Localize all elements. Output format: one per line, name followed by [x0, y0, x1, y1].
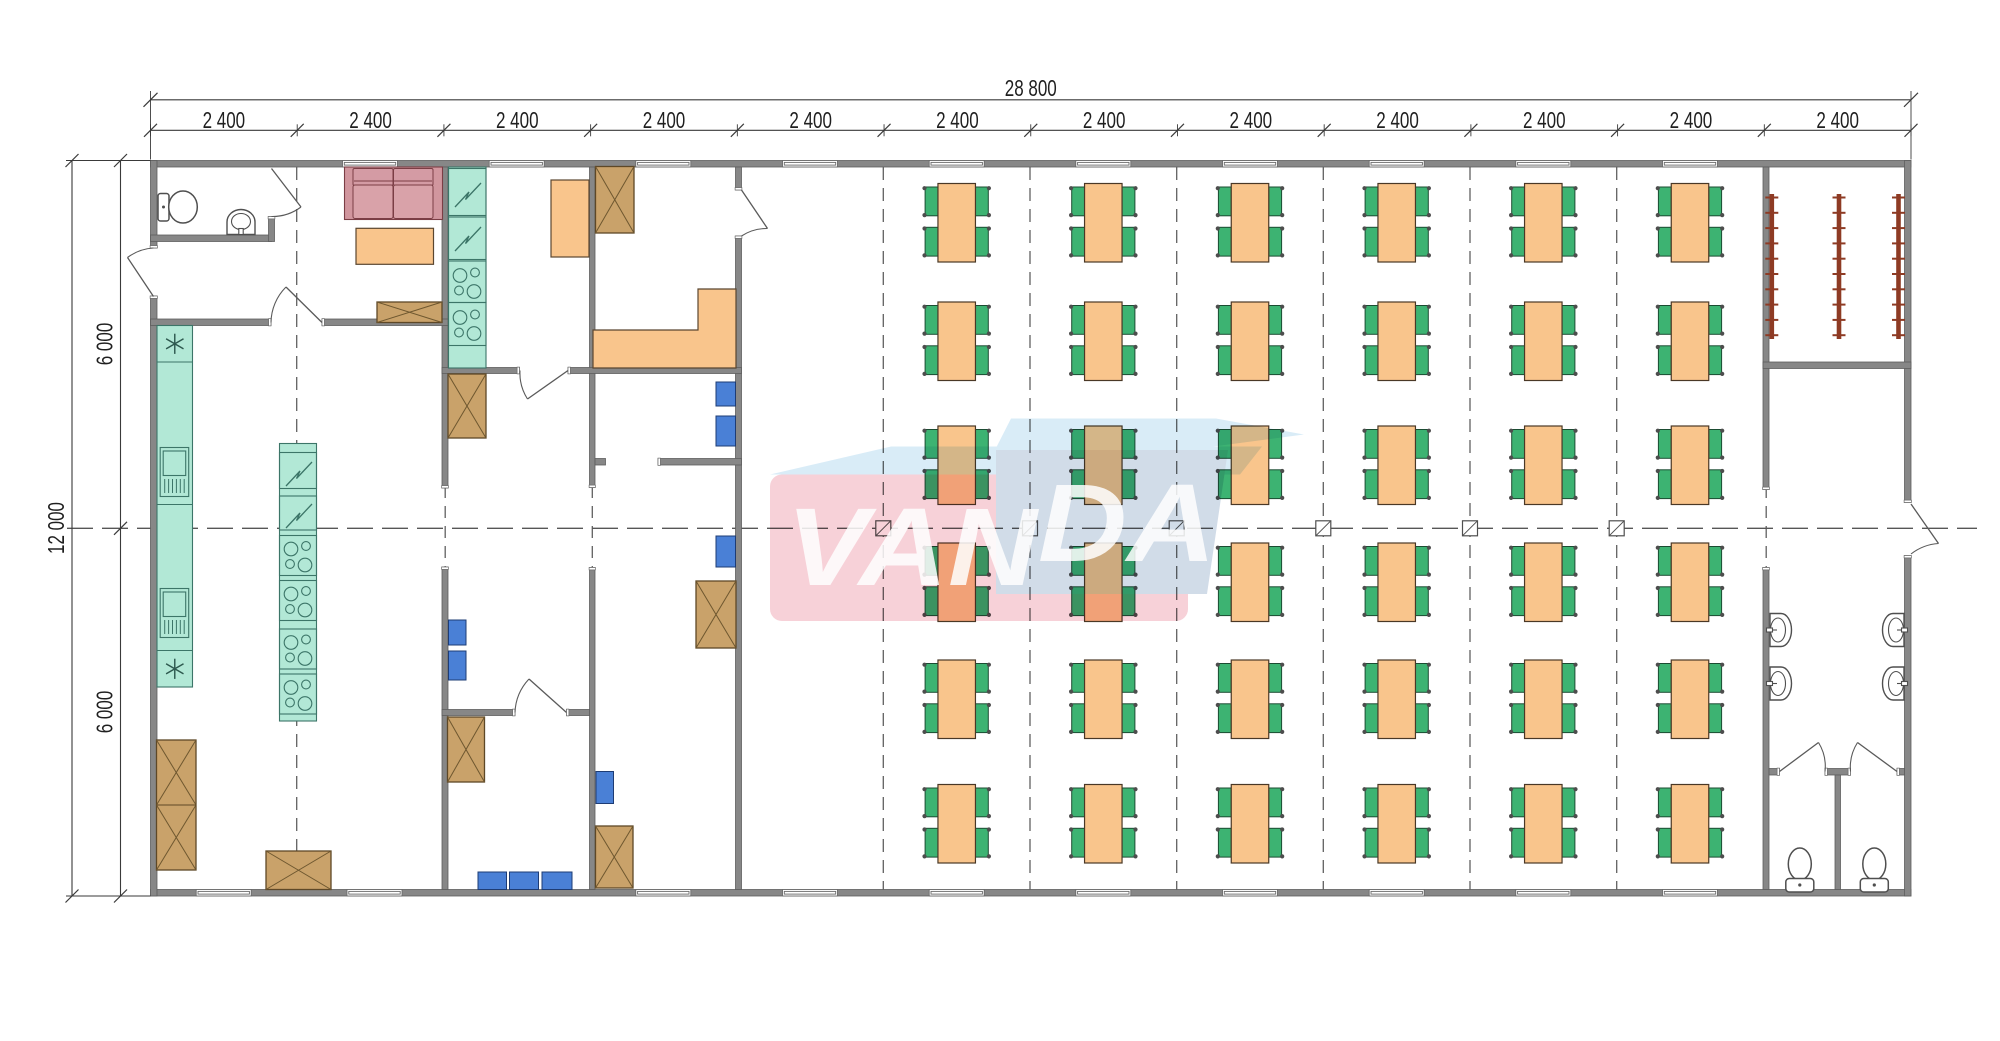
svg-text:6 000: 6 000 [93, 691, 118, 734]
svg-text:28 800: 28 800 [1005, 77, 1057, 102]
svg-text:2 400: 2 400 [789, 108, 832, 133]
svg-text:2 400: 2 400 [1376, 108, 1419, 133]
svg-text:6 000: 6 000 [93, 323, 118, 366]
svg-text:2 400: 2 400 [1816, 108, 1859, 133]
svg-text:2 400: 2 400 [1230, 108, 1273, 133]
svg-text:2 400: 2 400 [1523, 108, 1566, 133]
svg-text:DA: DA [1038, 461, 1216, 584]
svg-text:2 400: 2 400 [1083, 108, 1126, 133]
svg-text:2 400: 2 400 [1670, 108, 1713, 133]
svg-text:2 400: 2 400 [203, 108, 246, 133]
svg-text:12 000: 12 000 [45, 502, 70, 554]
svg-text:2 400: 2 400 [643, 108, 686, 133]
svg-text:2 400: 2 400 [349, 108, 392, 133]
svg-text:2 400: 2 400 [496, 108, 539, 133]
svg-text:VAN: VAN [786, 485, 1040, 608]
svg-text:2 400: 2 400 [936, 108, 979, 133]
